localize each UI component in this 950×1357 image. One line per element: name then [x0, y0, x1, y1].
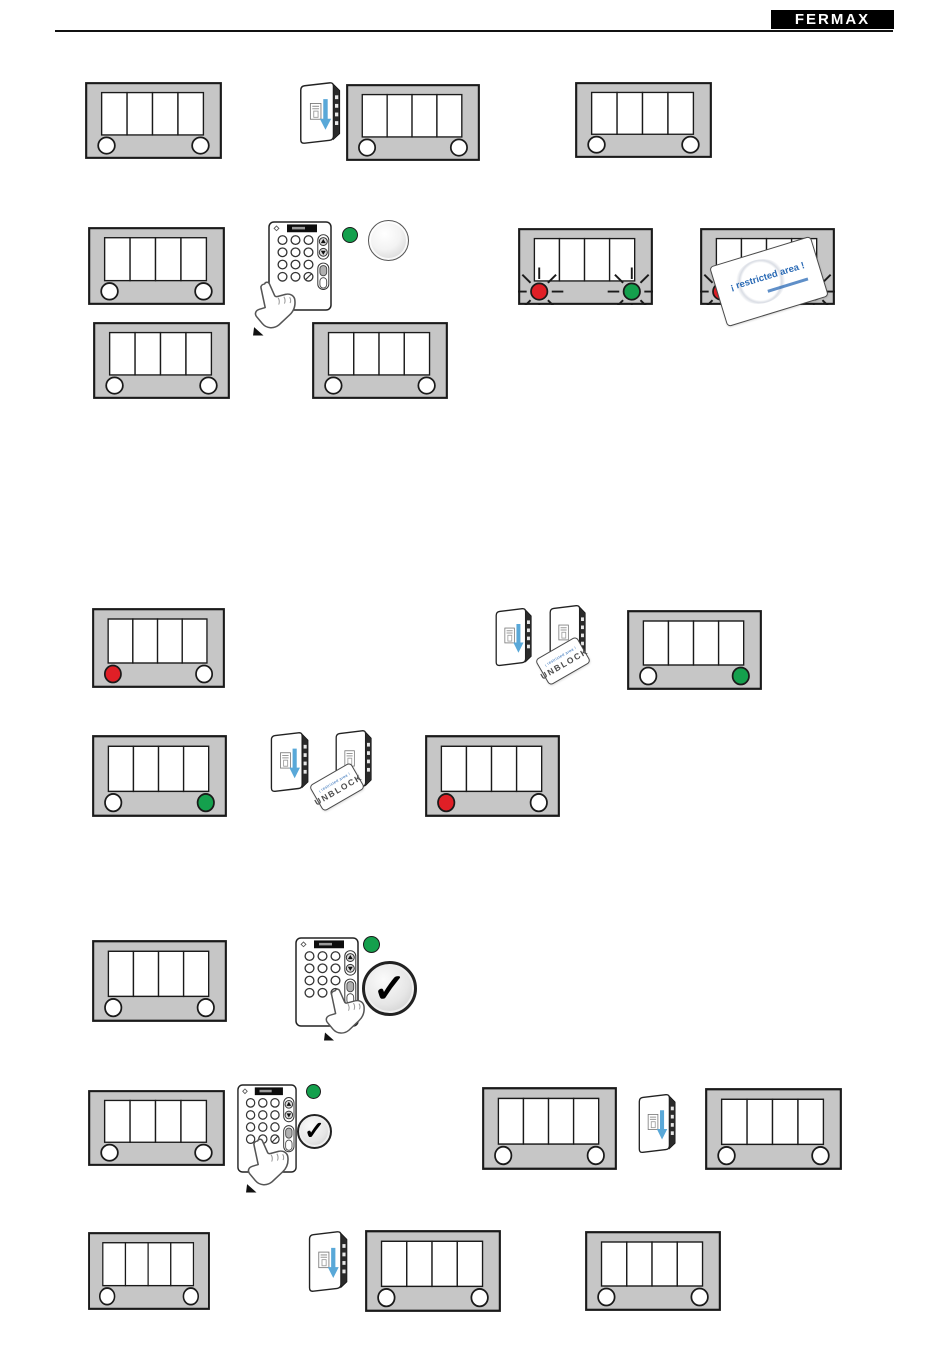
card-reader: [491, 606, 536, 669]
restricted-area-card-text: ¡ restricted area !: [729, 260, 806, 293]
display-panel-red-led: [425, 735, 560, 817]
display-panel-green-led: [627, 610, 762, 690]
card-reader: [634, 1092, 680, 1156]
display-panel: [88, 1232, 210, 1310]
check-icon: ✓: [304, 1119, 325, 1144]
display-panel: [482, 1087, 617, 1170]
fermax-logo: FERMAX: [771, 10, 894, 29]
display-panel: [575, 82, 712, 158]
display-panel: [365, 1230, 501, 1312]
green-led-indicator: [363, 936, 380, 953]
card-reader: [304, 1229, 352, 1295]
display-panel-red-led: [92, 608, 225, 688]
card-reader: [295, 80, 345, 147]
display-panel: [93, 322, 230, 399]
display-panel-blinking-red-green: [518, 228, 653, 305]
green-led-indicator: [306, 1084, 321, 1099]
confirm-check-button: ✓: [362, 961, 417, 1016]
check-icon: ✓: [373, 969, 407, 1009]
confirm-check-button: ✓: [297, 1114, 332, 1149]
display-panel: [585, 1231, 721, 1311]
display-panel: [346, 84, 480, 161]
display-panel: [92, 940, 227, 1022]
pointing-hand-icon: [252, 281, 298, 336]
manual-page: FERMAX ¡ restricted area ! ¡ restricted …: [0, 0, 950, 1357]
green-led-indicator: [342, 227, 358, 243]
display-panel: [88, 1090, 225, 1166]
card-reader: [266, 730, 313, 795]
pointing-hand-icon: [245, 1138, 291, 1193]
display-panel: [312, 322, 448, 399]
pointing-hand-icon: [323, 988, 367, 1041]
display-panel: [705, 1088, 842, 1170]
header-rule: [55, 30, 893, 32]
display-panel: [88, 227, 225, 305]
lamp-button: [368, 220, 409, 261]
display-panel-green-led: [92, 735, 227, 817]
display-panel: [85, 82, 222, 159]
